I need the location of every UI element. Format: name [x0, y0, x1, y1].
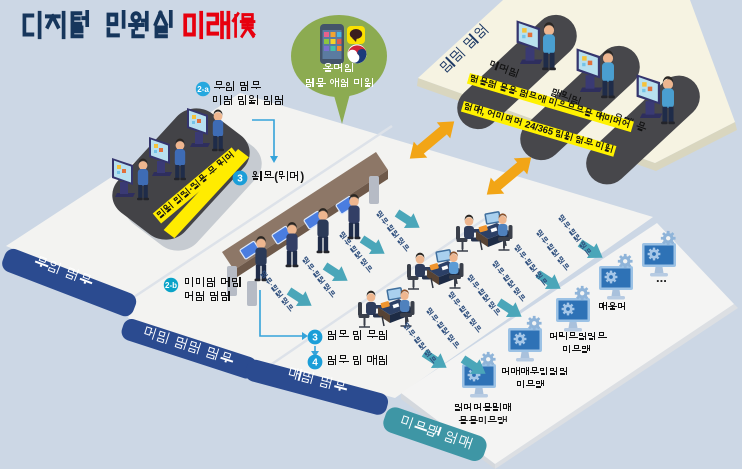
svg-text:3: 3	[237, 174, 243, 185]
svg-text:2-b: 2-b	[165, 281, 177, 290]
svg-text:3: 3	[312, 333, 318, 344]
svg-text:2-a: 2-a	[197, 85, 209, 94]
svg-text:4: 4	[312, 358, 318, 369]
